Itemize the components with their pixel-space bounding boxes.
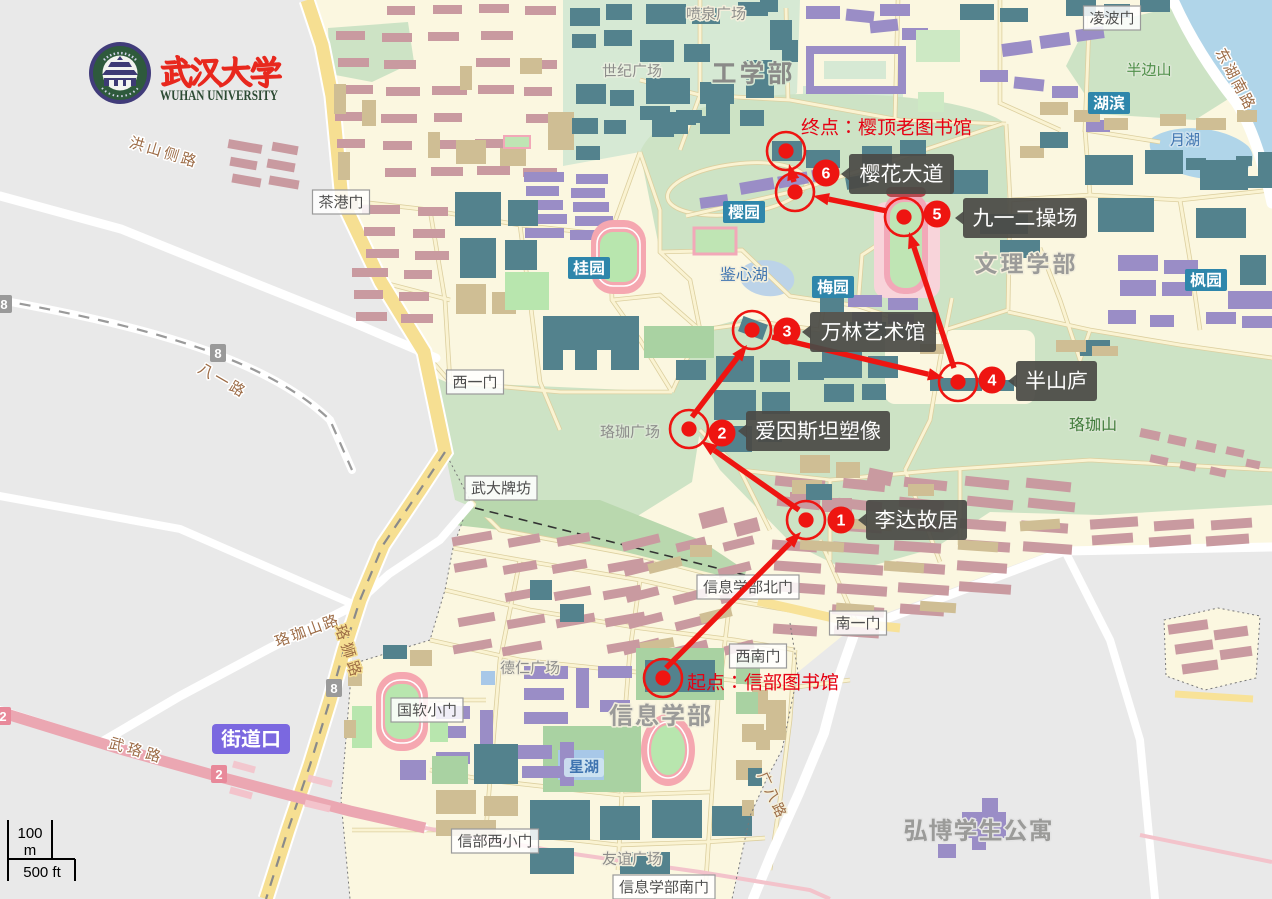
svg-text:100: 100 (17, 825, 42, 842)
svg-text:8: 8 (330, 681, 337, 696)
svg-text:2: 2 (0, 709, 7, 724)
svg-text:2: 2 (718, 426, 727, 443)
svg-text:6: 6 (822, 166, 831, 183)
svg-text:8: 8 (0, 297, 7, 312)
svg-text:3: 3 (783, 324, 792, 341)
svg-text:8: 8 (214, 346, 221, 361)
svg-text:500 ft: 500 ft (23, 864, 61, 881)
svg-text:2: 2 (215, 767, 222, 782)
svg-text:m: m (24, 842, 37, 859)
svg-text:5: 5 (933, 207, 942, 224)
svg-text:WUHAN UNIVERSITY: WUHAN UNIVERSITY (160, 88, 278, 104)
svg-text:1: 1 (837, 513, 846, 530)
svg-text:4: 4 (988, 373, 997, 390)
